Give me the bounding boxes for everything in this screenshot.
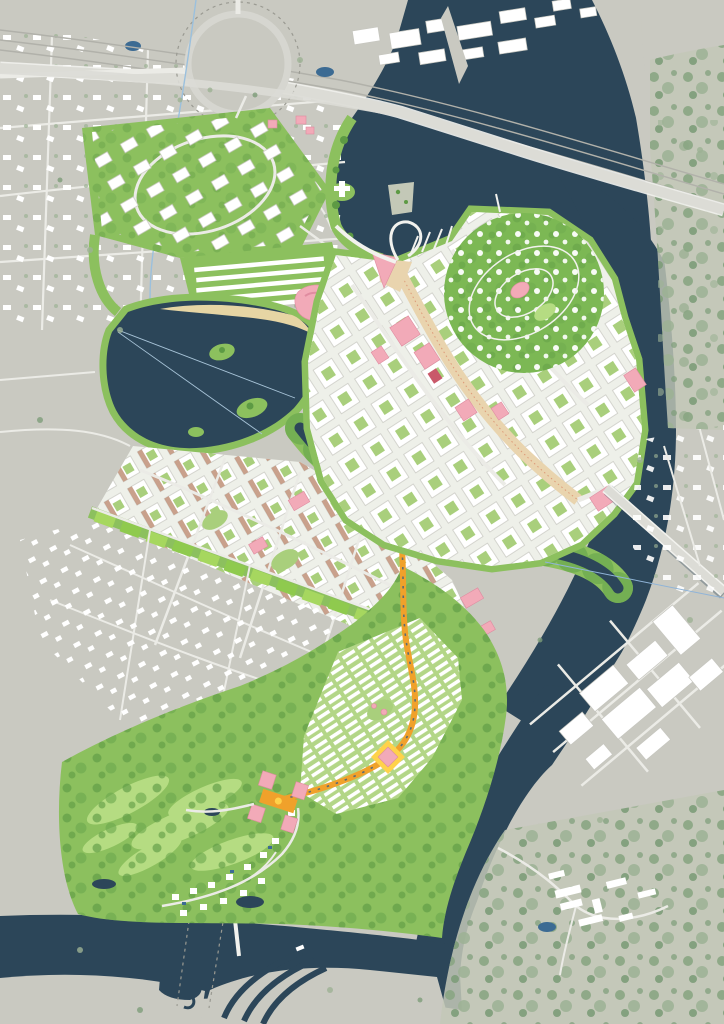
- village-pond: [538, 922, 556, 932]
- gray-islet: [388, 182, 414, 215]
- masterplan-map: [0, 0, 724, 1024]
- lake-island: [188, 427, 204, 437]
- masterplan-canvas: [0, 0, 724, 1024]
- pond: [316, 67, 334, 77]
